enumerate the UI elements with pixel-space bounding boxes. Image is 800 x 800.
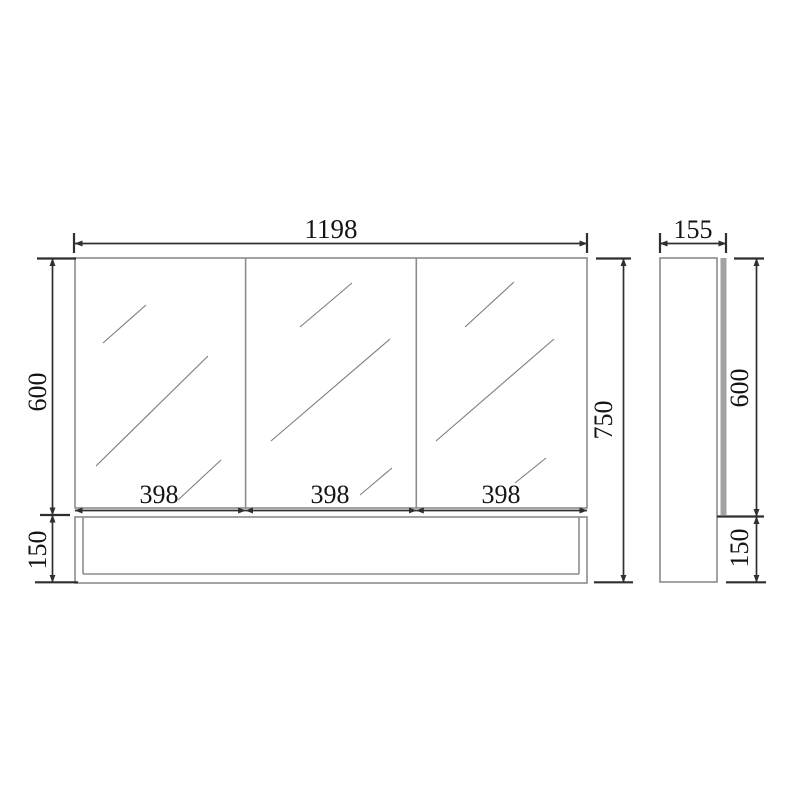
- dim-label-overall-width: 1198: [305, 214, 358, 244]
- dim-label-mirror-height-left: 600: [23, 373, 52, 412]
- dimensions: 1198 155 398 398 398 600 150: [23, 214, 766, 582]
- dim-label-overall-height: 750: [589, 401, 618, 440]
- dim-label-door-2-width: 398: [311, 480, 350, 509]
- dim-label-side-mirror-height: 600: [725, 369, 754, 408]
- mirror-shine-line: [360, 468, 392, 495]
- shelf-outline: [75, 517, 587, 583]
- technical-drawing-page: 1198 155 398 398 398 600 150: [0, 0, 800, 800]
- mirror-shine-line: [178, 460, 221, 500]
- mirror-shine-line: [271, 339, 390, 441]
- dim-label-depth: 155: [674, 215, 713, 244]
- mirror-shine-line: [96, 356, 208, 466]
- side-view: [660, 258, 727, 582]
- mirror-shine-line: [103, 305, 146, 343]
- front-cabinet-outline: [75, 258, 587, 508]
- mirror-shine-line: [436, 339, 554, 441]
- mirror-shine-line: [300, 283, 352, 327]
- dim-label-door-1-width: 398: [140, 480, 179, 509]
- dim-label-shelf-height-left: 150: [23, 531, 52, 570]
- dim-label-side-shelf-height: 150: [725, 529, 754, 568]
- front-view: [75, 258, 587, 583]
- dim-label-door-3-width: 398: [482, 480, 521, 509]
- mirror-cabinet-dimension-drawing: 1198 155 398 398 398 600 150: [0, 0, 800, 800]
- mirror-shine-line: [465, 282, 514, 327]
- side-cabinet-outline: [660, 258, 717, 582]
